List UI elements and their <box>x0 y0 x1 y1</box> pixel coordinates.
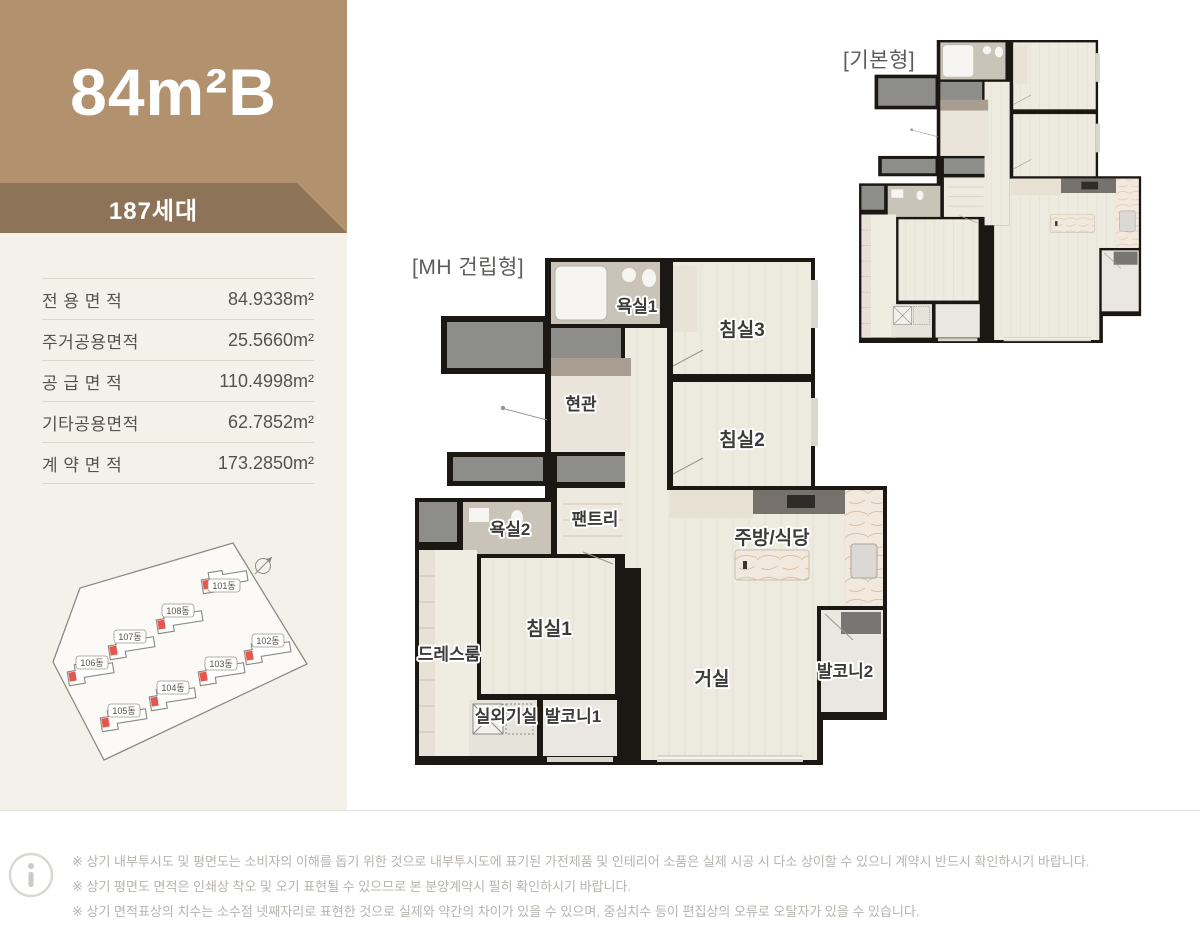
room-label: 침실3 <box>719 319 765 341</box>
footer-divider <box>0 810 1200 811</box>
disclaimer-line: ※ 상기 면적표상의 치수는 소수점 넷째자리로 표현한 것으로 실제와 약간의… <box>72 899 1197 924</box>
room-label: 드레스룸 <box>418 645 481 664</box>
compass-icon <box>255 557 272 574</box>
table-row: 공 급 면 적 110.4998m² <box>42 360 314 401</box>
site-plan: 101동 108동 107동 106동 102동 103동 104동 105동 <box>40 535 320 770</box>
units-ribbon-band: 187세대 <box>0 183 347 233</box>
room-label: 거실 <box>695 668 730 690</box>
table-row: 전 용 면 적 84.9338m² <box>42 278 314 319</box>
floor-plan-basic <box>853 40 1143 343</box>
room-label: 침실2 <box>719 429 765 451</box>
room-label: 발코니1 <box>545 707 601 726</box>
room-label: 팬트리 <box>572 510 619 529</box>
area-row-label: 전 용 면 적 <box>42 287 122 312</box>
room-label: 욕실2 <box>490 520 531 539</box>
units-count-label: 187세대 <box>109 191 198 226</box>
unit-type-title: 84m²B <box>70 54 277 130</box>
area-row-label: 주거공용면적 <box>42 328 139 353</box>
area-table: 전 용 면 적 84.9338m² 주거공용면적 25.5660m² 공 급 면… <box>42 278 314 484</box>
area-row-label: 기타공용면적 <box>42 410 139 435</box>
building-label: 104동 <box>161 683 184 693</box>
area-row-label: 계 약 면 적 <box>42 451 122 476</box>
room-label: 현관 <box>565 395 597 414</box>
disclaimer-line: ※ 상기 평면도 면적은 인쇄상 착오 및 오기 표현될 수 있으므로 본 분양… <box>72 874 1197 899</box>
unit-type-header: 84m²B <box>0 0 347 183</box>
info-icon <box>8 852 54 898</box>
sidebar: 84m²B 187세대 전 용 면 적 84.9338m² 주거공용면적 25.… <box>0 0 347 810</box>
table-row: 주거공용면적 25.5660m² <box>42 319 314 360</box>
room-label: 주방/식당 <box>734 527 810 549</box>
area-row-value: 110.4998m² <box>219 371 314 392</box>
room-label: 욕실1 <box>617 297 658 316</box>
building-label: 101동 <box>212 581 235 591</box>
area-row-value: 84.9338m² <box>228 289 314 310</box>
table-row: 기타공용면적 62.7852m² <box>42 401 314 442</box>
brochure-page: 84m²B 187세대 전 용 면 적 84.9338m² 주거공용면적 25.… <box>0 0 1200 950</box>
area-row-value: 62.7852m² <box>228 412 314 433</box>
floor-plan-mh: 욕실1 침실3 현관 침실2 팬트리 욕실2 주방/식당 드레스룸 침실1 거실… <box>405 258 890 765</box>
building-label: 107동 <box>118 632 141 642</box>
room-label: 실외기실 <box>475 707 538 726</box>
building-label: 103동 <box>209 659 232 669</box>
area-row-label: 공 급 면 적 <box>42 369 122 394</box>
units-ribbon: 187세대 <box>0 183 347 233</box>
area-row-value: 173.2850m² <box>218 453 314 474</box>
disclaimer-line: ※ 상기 내부투시도 및 평면도는 소비자의 이해를 돕기 위한 것으로 내부투… <box>72 849 1197 874</box>
area-row-value: 25.5660m² <box>228 330 314 351</box>
building-label: 108동 <box>166 606 189 616</box>
building-label: 105동 <box>112 706 135 716</box>
room-label: 침실1 <box>526 618 572 640</box>
building-label: 102동 <box>256 636 279 646</box>
room-label: 발코니2 <box>817 662 873 681</box>
disclaimer-notes: ※ 상기 내부투시도 및 평면도는 소비자의 이해를 돕기 위한 것으로 내부투… <box>72 849 1197 924</box>
building-label: 106동 <box>80 658 103 668</box>
table-row: 계 약 면 적 173.2850m² <box>42 442 314 484</box>
